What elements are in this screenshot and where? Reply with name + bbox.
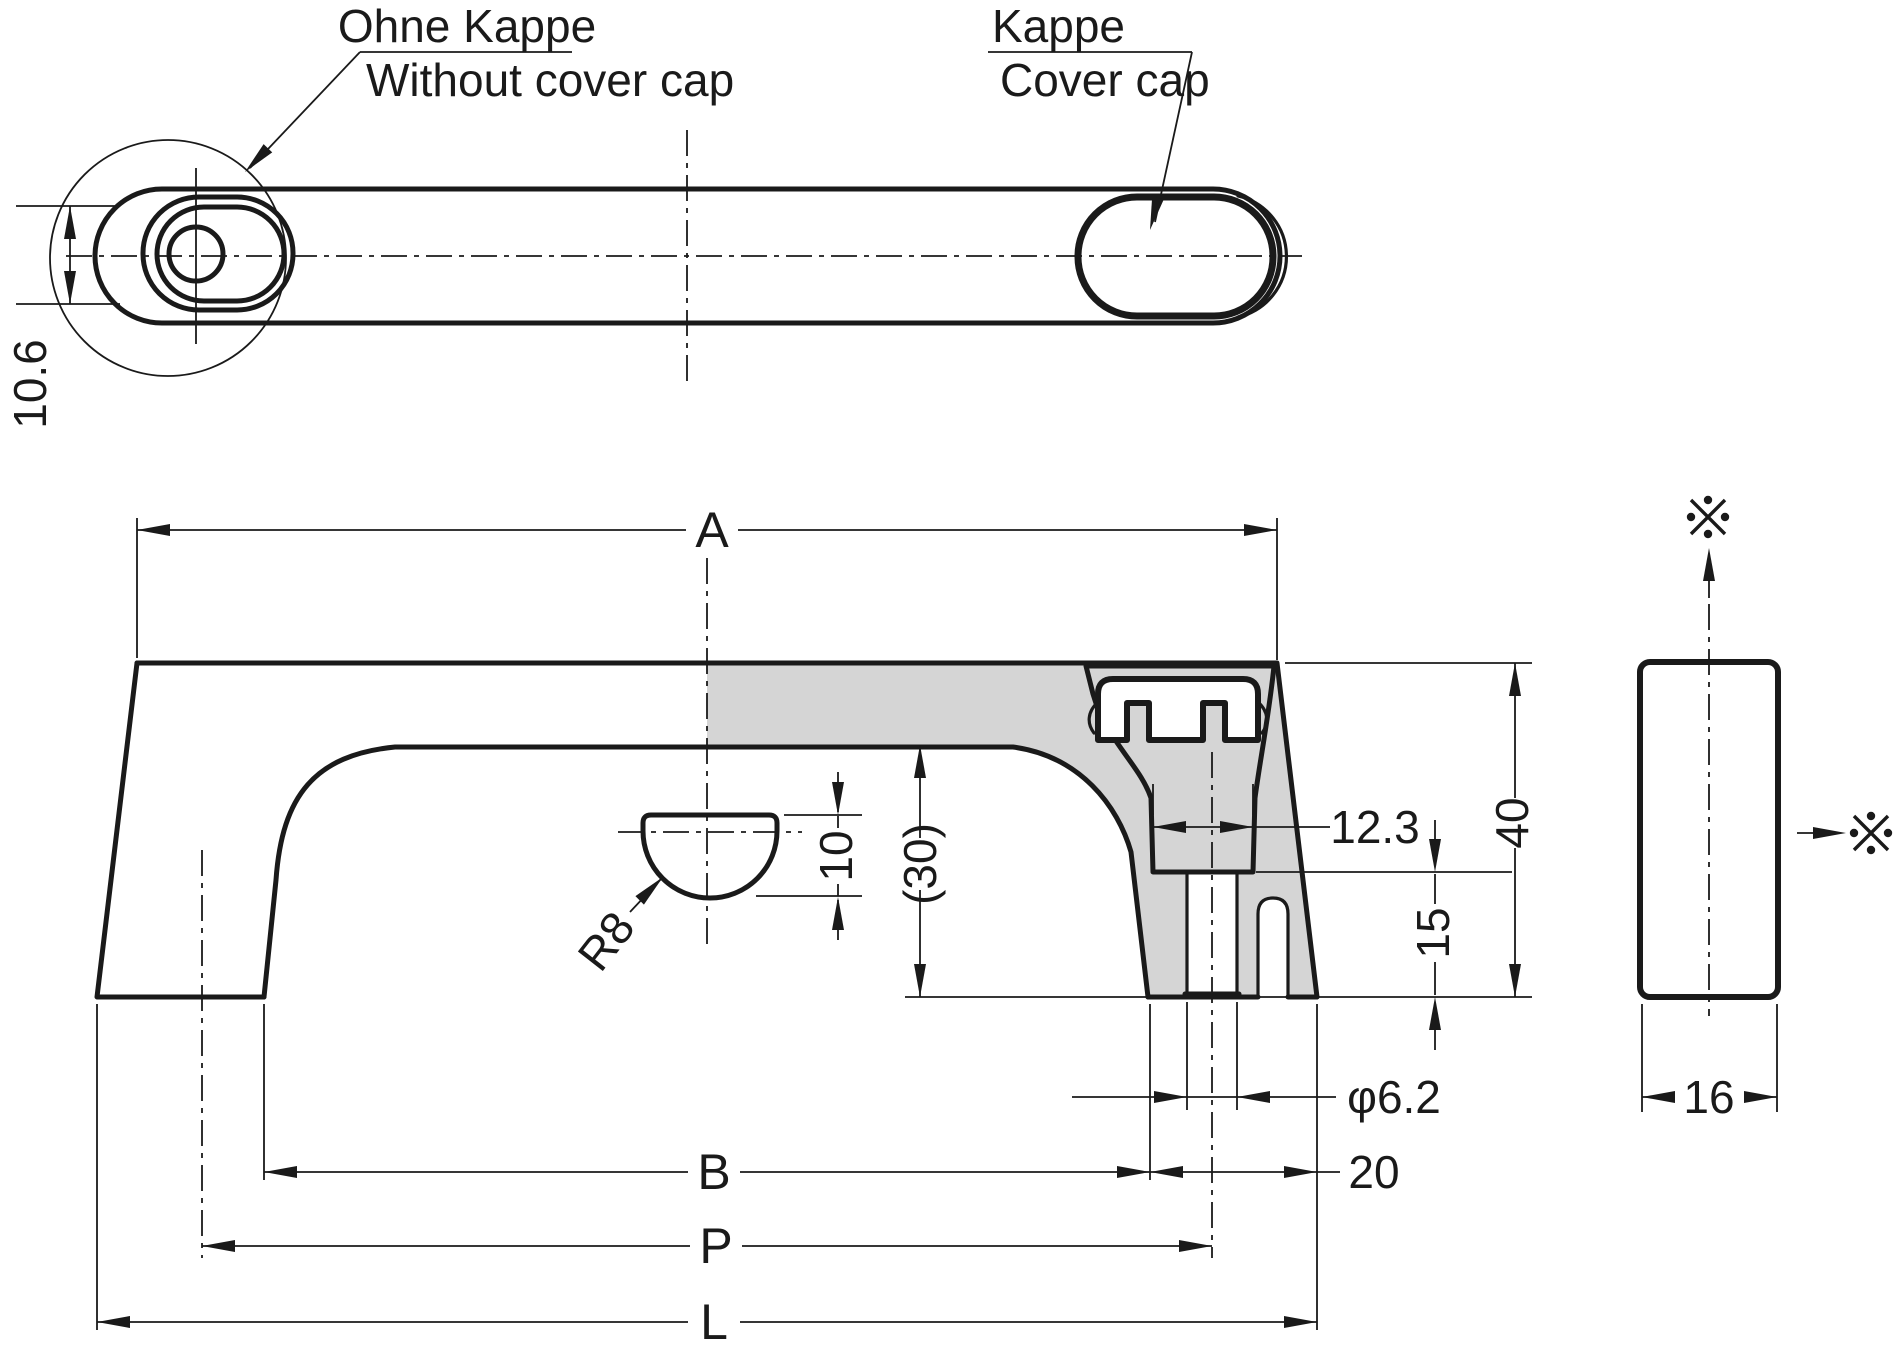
dim-30-label: (30) <box>894 823 946 905</box>
front-section-view: A 12.3 (30) 10 R8 15 40 <box>97 502 1538 1350</box>
callout-ohne-kappe: Ohne Kappe <box>338 0 596 52</box>
callout-kappe: Kappe <box>992 0 1125 52</box>
dim-p-label: P <box>699 1218 732 1274</box>
dim-30-arrow-down <box>914 964 926 997</box>
dim-20-arrow-left <box>1150 1166 1183 1178</box>
technical-drawing-handle: 10.6 Ohne Kappe Without cover cap Kappe … <box>0 0 1904 1358</box>
dim-b-arrow-right <box>1117 1166 1150 1178</box>
dim-a-arrow-left <box>137 524 170 536</box>
dim-40-label: 40 <box>1486 797 1538 848</box>
dim-30-arrow-up <box>914 745 926 778</box>
inner-profile-outline <box>264 747 1148 997</box>
reference-mark-icon <box>1850 812 1892 854</box>
dim-10-label: 10 <box>810 830 862 881</box>
dim-10-6-arrow-down <box>64 271 76 304</box>
dim-16-arrow-left <box>1642 1091 1675 1103</box>
dim-l-label: L <box>700 1294 728 1350</box>
ohne-kappe-leader-arrow <box>241 144 273 176</box>
boss-r8 <box>643 815 777 898</box>
dim-6-2-arrow-left <box>1154 1091 1187 1103</box>
kappe-leader-arrow <box>1144 197 1164 232</box>
dim-40-arrow-bottom <box>1509 964 1521 997</box>
cover-cap-section <box>1098 679 1258 740</box>
reference-arrow-top <box>1703 548 1715 581</box>
reference-arrow-right <box>1813 827 1846 839</box>
dim-15-arrow-bottom <box>1429 997 1441 1030</box>
dim-r8-label: R8 <box>567 902 644 980</box>
dim-40-arrow-top <box>1509 663 1521 696</box>
dim-a-label: A <box>695 502 729 558</box>
side-view: 16 <box>1640 496 1892 1123</box>
dim-l-arrow-left <box>97 1316 130 1328</box>
dim-p-arrow-right <box>1179 1240 1212 1252</box>
r8-leader-arrow <box>635 873 667 905</box>
dim-6-2-arrow-right <box>1237 1091 1270 1103</box>
dim-10-arrow-top <box>832 782 844 815</box>
drawing-canvas: 10.6 Ohne Kappe Without cover cap Kappe … <box>0 0 1904 1358</box>
dim-20-arrow-right <box>1284 1166 1317 1178</box>
dim-b-label: B <box>697 1144 730 1200</box>
dim-l-arrow-right <box>1284 1316 1317 1328</box>
dim-p-arrow-left <box>202 1240 235 1252</box>
dim-b-arrow-left <box>264 1166 297 1178</box>
dim-16-arrow-right <box>1744 1091 1777 1103</box>
recess-outer-outline <box>143 197 293 310</box>
callout-without-cover-cap: Without cover cap <box>366 54 734 106</box>
dim-15-label: 15 <box>1407 907 1459 958</box>
dim-10-arrow-bottom <box>832 897 844 930</box>
left-leg-outline <box>97 663 264 997</box>
dim-6-2-label: φ6.2 <box>1347 1071 1441 1123</box>
dim-10-6-label: 10.6 <box>4 339 56 429</box>
dim-12-3-label: 12.3 <box>1330 801 1420 853</box>
foot-slot-outline <box>1258 898 1288 997</box>
dim-16-label: 16 <box>1683 1071 1734 1123</box>
dim-20-label: 20 <box>1348 1146 1399 1198</box>
callout-cover-cap: Cover cap <box>1000 54 1210 106</box>
dim-10-6-arrow-up <box>64 206 76 239</box>
dim-15-arrow-top <box>1429 839 1441 872</box>
top-view: 10.6 Ohne Kappe Without cover cap Kappe … <box>4 0 1302 429</box>
reference-mark-icon <box>1687 496 1729 538</box>
dim-a-arrow-right <box>1244 524 1277 536</box>
